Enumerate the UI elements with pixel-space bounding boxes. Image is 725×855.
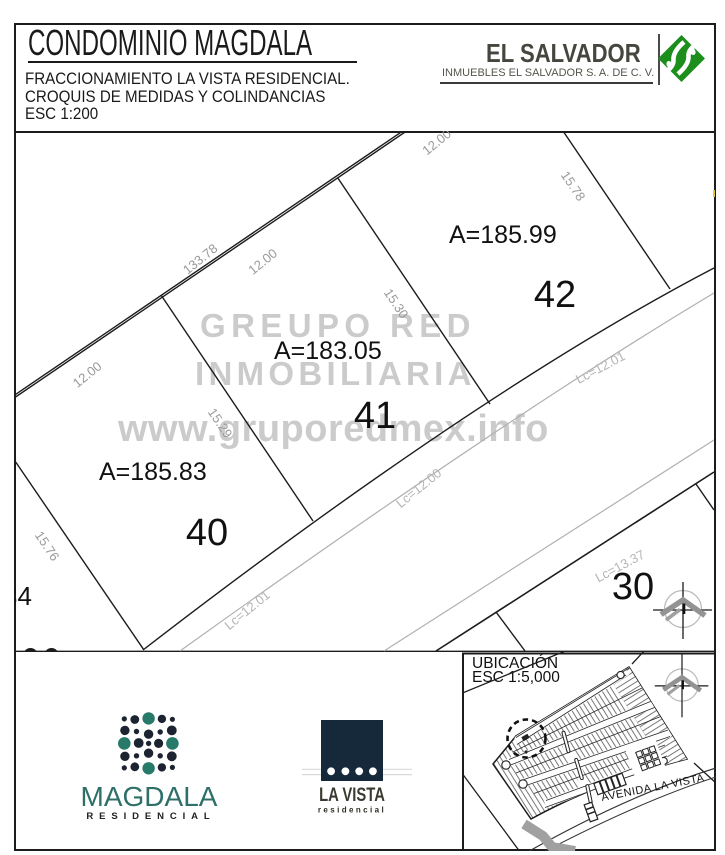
- svg-text:A=185.83: A=185.83: [99, 458, 207, 486]
- svg-text:residencial: residencial: [318, 806, 386, 815]
- svg-text:A=185.99: A=185.99: [449, 221, 557, 249]
- svg-text:Lc=12.01: Lc=12.01: [573, 348, 628, 387]
- svg-text:LA VISTA: LA VISTA: [319, 784, 385, 805]
- svg-text:41: 41: [354, 395, 396, 437]
- svg-text:Lc=12.01: Lc=12.01: [222, 587, 273, 633]
- svg-text:12.00: 12.00: [245, 245, 280, 277]
- svg-text:12.00: 12.00: [70, 358, 105, 390]
- svg-text:12.00: 12.00: [419, 131, 454, 158]
- svg-text:A=183.05: A=183.05: [274, 337, 382, 365]
- svg-text:15.78: 15.78: [558, 168, 589, 203]
- svg-text:www.gruporedmex.info: www.gruporedmex.info: [117, 408, 549, 450]
- svg-text:42: 42: [534, 274, 576, 316]
- svg-text:RESIDENCIAL: RESIDENCIAL: [86, 811, 215, 822]
- svg-text:40: 40: [186, 512, 228, 554]
- svg-text:MAGDALA: MAGDALA: [81, 781, 218, 812]
- svg-text:Lc=12.00: Lc=12.00: [393, 465, 444, 511]
- svg-text:34: 34: [15, 581, 32, 611]
- svg-text:15.76: 15.76: [32, 528, 63, 563]
